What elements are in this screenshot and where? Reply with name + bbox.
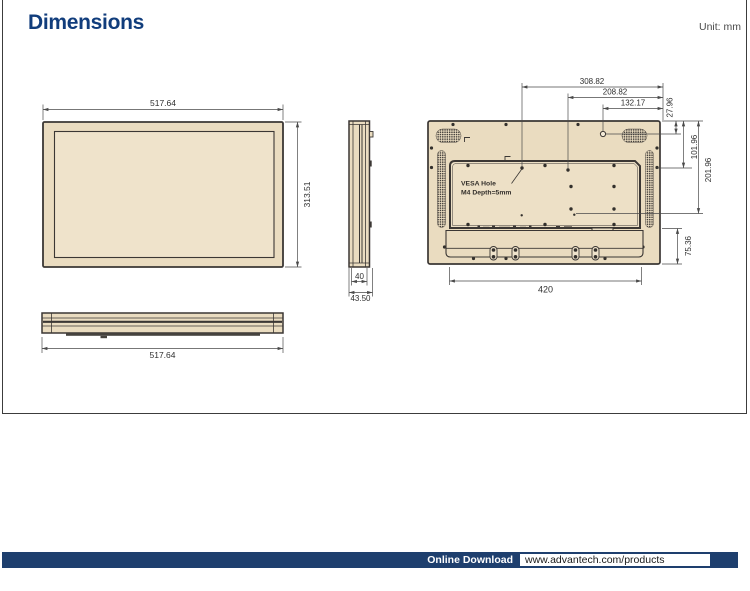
vesa-note-line1: VESA Hole (461, 181, 496, 188)
vent-right-strip (646, 151, 654, 228)
online-download-label: Online Download (427, 554, 513, 566)
rear-dim-132: 132.17 (621, 99, 646, 108)
side-view (349, 121, 373, 267)
vent-top-left (436, 129, 461, 143)
rear-dim-201: 201.96 (704, 157, 713, 182)
front-width-dim: 517.64 (150, 98, 176, 108)
front-screen (55, 132, 275, 258)
bottom-body (42, 313, 283, 333)
vent-top-right (622, 129, 647, 143)
vent-left-strip (438, 151, 446, 228)
bottom-gasket-strip (66, 333, 260, 336)
rear-view: VESA Hole M4 Depth=5mm (428, 121, 660, 264)
rear-dim-27: 27.96 (666, 97, 675, 118)
front-height-dim: 313.51 (302, 181, 312, 207)
side-depth-dim: 40 (355, 272, 364, 281)
dimensions-drawing: 517.64 313.51 40 43.50 (0, 0, 750, 591)
bottom-view (42, 313, 283, 338)
rear-lower-band (446, 231, 643, 258)
rear-ref-hole (600, 131, 605, 136)
vesa-note-line2: M4 Depth=5mm (461, 190, 511, 197)
footer-url-link[interactable]: www.advantech.com/products (520, 554, 710, 566)
side-total-depth-dim: 43.50 (350, 294, 371, 303)
rear-dim-420: 420 (538, 285, 553, 295)
rear-dim-101: 101.96 (690, 134, 699, 159)
front-view (43, 122, 283, 267)
side-top-protrusion (370, 132, 374, 138)
rear-dim-208: 208.82 (603, 88, 628, 97)
rear-dim-75: 75.36 (684, 235, 693, 256)
bottom-width-dim: 517.64 (150, 350, 176, 360)
footer-bar: Online Download www.advantech.com/produc… (2, 552, 738, 568)
rear-dim-308: 308.82 (580, 77, 605, 86)
